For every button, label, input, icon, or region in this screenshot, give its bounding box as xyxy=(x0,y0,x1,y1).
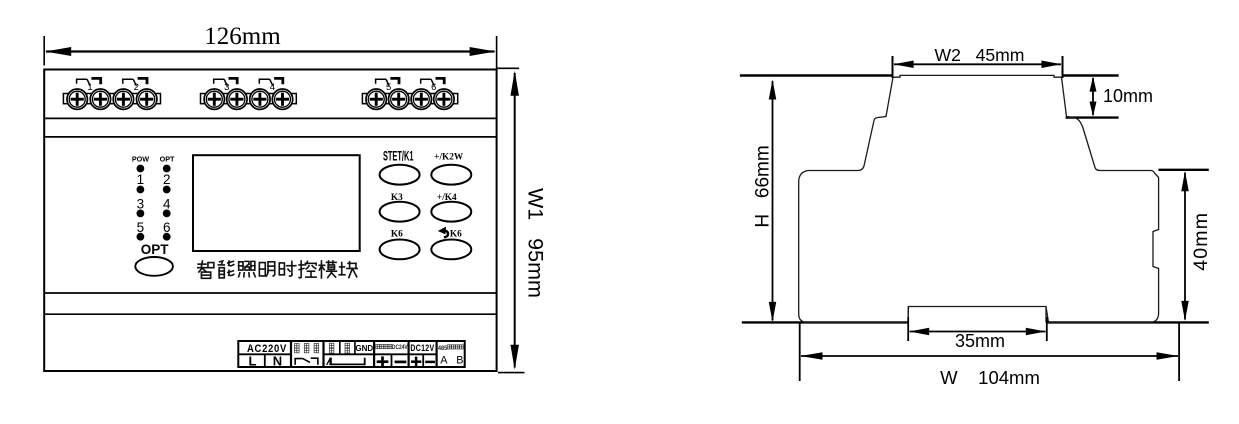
svg-text:K3: K3 xyxy=(391,193,403,203)
svg-text:N: N xyxy=(273,353,282,368)
svg-text:1: 1 xyxy=(87,82,92,93)
svg-text:4: 4 xyxy=(270,82,275,93)
svg-text:W 104mm: W 104mm xyxy=(940,367,1040,388)
svg-text:6: 6 xyxy=(163,220,171,235)
svg-text:5: 5 xyxy=(137,220,145,235)
svg-text:6: 6 xyxy=(431,82,436,93)
svg-text:DC24V: DC24V xyxy=(392,345,408,352)
svg-text:K6: K6 xyxy=(391,229,403,239)
svg-text:STET/K1: STET/K1 xyxy=(383,149,413,164)
svg-text:OPT: OPT xyxy=(141,242,170,257)
svg-text:DC12V: DC12V xyxy=(410,343,434,353)
svg-text:W2 45mm: W2 45mm xyxy=(935,45,1025,65)
svg-text:2: 2 xyxy=(134,82,139,93)
svg-text:1: 1 xyxy=(137,172,145,187)
svg-text:A: A xyxy=(440,355,448,367)
svg-text:POW: POW xyxy=(132,154,149,163)
svg-text:B: B xyxy=(456,355,463,367)
svg-text:+/K4: +/K4 xyxy=(437,193,457,203)
svg-text:40mm: 40mm xyxy=(1190,212,1212,271)
svg-text:126mm: 126mm xyxy=(204,23,281,50)
svg-text:GND: GND xyxy=(355,344,373,353)
svg-text:10mm: 10mm xyxy=(1103,86,1153,106)
svg-text:35mm: 35mm xyxy=(955,331,1005,351)
svg-text:OPT: OPT xyxy=(160,154,175,163)
svg-text:L: L xyxy=(249,353,257,368)
svg-text:+/K2W: +/K2W xyxy=(434,153,464,163)
svg-text:K6: K6 xyxy=(450,229,462,239)
svg-text:485: 485 xyxy=(438,345,448,353)
svg-text:3: 3 xyxy=(224,82,229,93)
svg-text:W1 95mm: W1 95mm xyxy=(524,188,548,298)
svg-text:5: 5 xyxy=(386,82,391,93)
svg-text:H 66mm: H 66mm xyxy=(753,145,774,227)
svg-text:3: 3 xyxy=(137,197,145,212)
svg-text:4: 4 xyxy=(163,197,171,212)
svg-text:2: 2 xyxy=(163,172,171,187)
